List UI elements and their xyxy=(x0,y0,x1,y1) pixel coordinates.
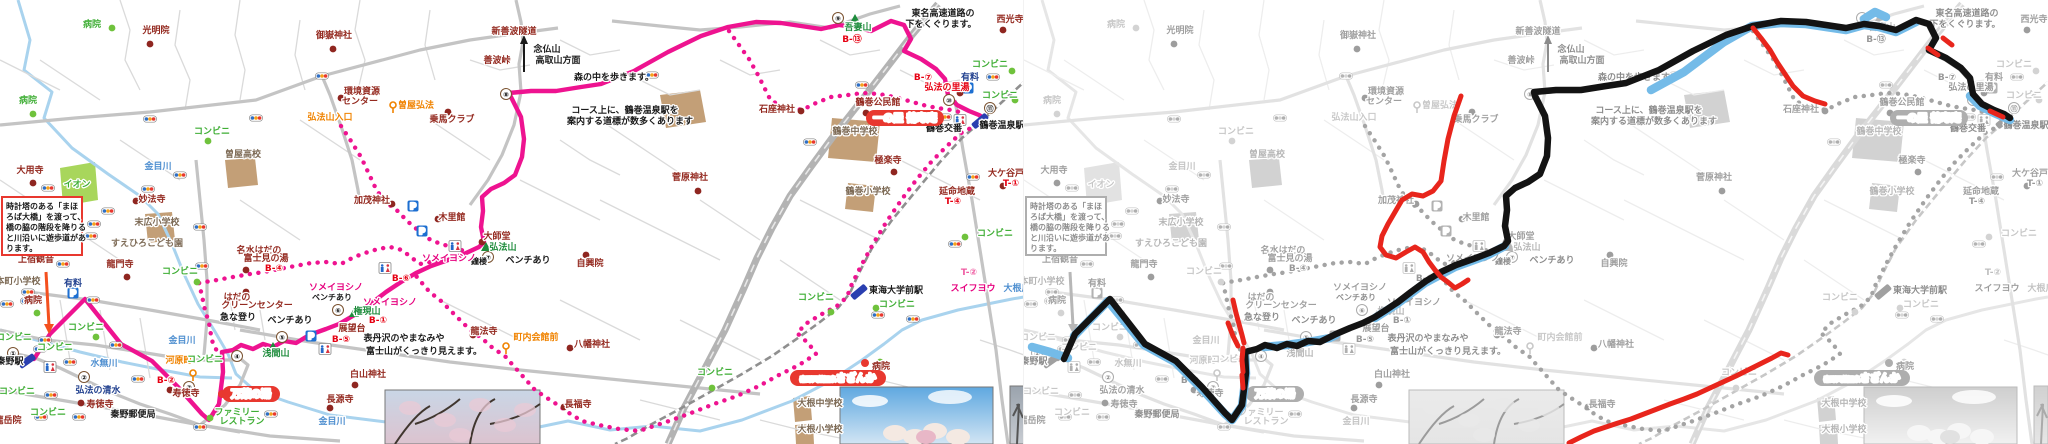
svg-text:秦野郵便局: 秦野郵便局 xyxy=(109,408,155,420)
gps-traces-svg xyxy=(1024,0,2048,444)
svg-text:本町小学校: 本町小学校 xyxy=(0,275,41,287)
svg-text:橋の脇の階段を降りる: 橋の脇の階段を降りる xyxy=(6,222,86,232)
svg-text:曽屋弘法: 曽屋弘法 xyxy=(398,99,434,111)
svg-text:レストラン: レストラン xyxy=(219,416,264,427)
svg-text:鶴巻中学校: 鶴巻中学校 xyxy=(832,125,878,137)
svg-text:新善波隧道: 新善波隧道 xyxy=(491,25,536,37)
svg-text:大根中学校: 大根中学校 xyxy=(797,397,843,409)
svg-text:⑪: ⑪ xyxy=(987,104,994,113)
svg-text:⑩: ⑩ xyxy=(946,97,952,105)
svg-text:⑨: ⑨ xyxy=(835,15,841,23)
svg-text:高取山方面: 高取山方面 xyxy=(535,54,580,66)
svg-text:乗馬クラブ: 乗馬クラブ xyxy=(429,113,474,125)
svg-text:寿徳寺: 寿徳寺 xyxy=(172,387,199,399)
svg-text:B-⑦: B-⑦ xyxy=(914,73,932,83)
svg-text:善波峠: 善波峠 xyxy=(483,54,510,66)
svg-text:コンビニ: コンビニ xyxy=(977,227,1013,239)
panel-course-map-gps-overlay: PPPPP①②③④⑤⑥⑦⑧⑨⑩⑪病院病院光明院御嶽神社コンビニ弘法山入口新善波隧… xyxy=(1024,0,2048,444)
svg-text:極楽寺: 極楽寺 xyxy=(873,154,901,166)
svg-text:鶴巻小学校: 鶴巻小学校 xyxy=(845,185,891,197)
svg-text:B-⑬: B-⑬ xyxy=(842,33,862,45)
svg-text:コンビニ: コンビニ xyxy=(37,341,73,353)
svg-text:T-②: T-② xyxy=(961,268,977,278)
svg-text:念仏山: 念仏山 xyxy=(532,43,560,55)
svg-text:コンビニ: コンビニ xyxy=(879,298,915,310)
svg-text:病院: 病院 xyxy=(83,18,101,30)
svg-text:浅間山: 浅間山 xyxy=(262,347,289,359)
gps-trace-black xyxy=(1064,20,2010,420)
gps-trace-blue xyxy=(1032,12,2010,420)
svg-text:コンビニ: コンビニ xyxy=(0,385,35,397)
svg-text:有料: 有料 xyxy=(961,71,979,83)
svg-text:T-①: T-① xyxy=(1003,179,1019,189)
svg-text:すえひろこども園: すえひろこども園 xyxy=(111,237,183,249)
gps-trace-red xyxy=(1228,28,2003,443)
svg-text:⑥: ⑥ xyxy=(335,307,341,315)
svg-text:ソメイヨシノ: ソメイヨシノ xyxy=(422,253,476,264)
svg-text:弘法山入口: 弘法山入口 xyxy=(307,111,352,123)
svg-text:森の中を歩きます。: 森の中を歩きます。 xyxy=(574,71,654,83)
svg-text:東名高速道路の: 東名高速道路の xyxy=(911,7,974,19)
svg-text:加茂神社: 加茂神社 xyxy=(353,194,390,206)
svg-text:ベンチあり: ベンチあり xyxy=(267,315,312,326)
svg-text:八幡神社: 八幡神社 xyxy=(573,338,610,350)
svg-text:イオン: イオン xyxy=(63,179,90,190)
svg-text:吾妻山: 吾妻山 xyxy=(844,21,871,33)
svg-text:環境資源: 環境資源 xyxy=(344,85,380,97)
svg-text:急な登り: 急な登り xyxy=(220,311,256,323)
svg-text:B-①: B-① xyxy=(369,316,387,326)
svg-text:ソメイヨシノ: ソメイヨシノ xyxy=(309,282,363,293)
svg-text:コンビニ: コンビニ xyxy=(30,406,66,418)
svg-text:金目川: 金目川 xyxy=(143,160,171,172)
svg-text:龍岳院: 龍岳院 xyxy=(0,414,22,426)
svg-text:⑤: ⑤ xyxy=(279,334,285,342)
svg-text:コンビニ: コンビニ xyxy=(697,366,733,378)
svg-text:B-⑤: B-⑤ xyxy=(332,335,350,345)
svg-text:東海大学前駅: 東海大学前駅 xyxy=(869,284,924,296)
svg-text:表丹沢のやまなみや: 表丹沢のやまなみや xyxy=(362,332,444,344)
svg-text:寿徳寺: 寿徳寺 xyxy=(86,398,113,410)
svg-text:時計塔のある「まほ: 時計塔のある「まほ xyxy=(6,201,78,211)
svg-text:下をくぐります。: 下をくぐります。 xyxy=(905,19,976,30)
svg-text:クリーンセンター: クリーンセンター xyxy=(221,299,293,311)
svg-text:コース上に、鶴巻温泉駅を: コース上に、鶴巻温泉駅を xyxy=(571,104,678,116)
svg-text:コンビニ: コンビニ xyxy=(162,265,198,277)
svg-text:御嶽神社: 御嶽神社 xyxy=(315,29,352,41)
svg-text:長福寺: 長福寺 xyxy=(564,398,591,410)
svg-text:P: P xyxy=(419,227,425,236)
svg-text:白山神社: 白山神社 xyxy=(350,368,386,380)
svg-text:ろば大橋」を渡って、: ろば大橋」を渡って、 xyxy=(6,212,85,222)
svg-text:曽屋高校: 曽屋高校 xyxy=(225,148,262,160)
svg-text:コンビニ: コンビニ xyxy=(0,331,32,343)
svg-text:町内会館前: 町内会館前 xyxy=(513,331,558,343)
svg-text:大根川: 大根川 xyxy=(1003,282,1024,294)
svg-text:長源寺: 長源寺 xyxy=(326,393,353,405)
svg-text:弘法の清水: 弘法の清水 xyxy=(75,384,121,396)
svg-text:大師堂: 大師堂 xyxy=(483,230,510,242)
svg-text:②: ② xyxy=(81,374,87,382)
svg-text:秦野駅: 秦野駅 xyxy=(0,355,24,367)
svg-text:富士見の湯: 富士見の湯 xyxy=(243,252,288,264)
svg-text:P: P xyxy=(410,202,416,211)
svg-text:ベンチあり: ベンチあり xyxy=(505,255,550,266)
svg-text:大ケ谷戸: 大ケ谷戸 xyxy=(988,167,1024,179)
screenshot-root: PPPPP①②③④⑤⑥⑦⑧⑨⑩⑪病院病院光明院御嶽神社コンビニ弘法山入口新善波隧… xyxy=(0,0,2048,444)
svg-text:万葉の湯: 万葉の湯 xyxy=(230,388,271,401)
svg-text:コンビニ: コンビニ xyxy=(798,291,834,303)
svg-text:案内する道標が数多くあります: 案内する道標が数多くあります xyxy=(566,115,693,127)
svg-text:金目川: 金目川 xyxy=(167,334,195,346)
svg-text:ります。: ります。 xyxy=(6,244,37,253)
svg-text:妙法寺: 妙法寺 xyxy=(138,193,165,205)
svg-text:自興院: 自興院 xyxy=(576,257,603,269)
svg-text:富士山がくっきり見えます。: 富士山がくっきり見えます。 xyxy=(366,345,482,357)
svg-text:コンビニ: コンビニ xyxy=(972,58,1008,70)
svg-text:西光寺: 西光寺 xyxy=(996,13,1023,25)
svg-text:と川沿いに遊歩道があ: と川沿いに遊歩道があ xyxy=(6,233,86,243)
svg-text:弘法の里湯: 弘法の里湯 xyxy=(924,81,969,93)
svg-text:龍法寺: 龍法寺 xyxy=(470,325,497,337)
svg-text:末広小学校: 末広小学校 xyxy=(133,216,180,228)
svg-text:延命地蔵: 延命地蔵 xyxy=(938,185,975,197)
svg-text:スイフヨウ: スイフヨウ xyxy=(950,283,995,294)
svg-text:石座神社: 石座神社 xyxy=(758,103,795,115)
svg-text:P: P xyxy=(70,289,76,298)
svg-text:金目川: 金目川 xyxy=(317,415,345,427)
svg-text:鶴巻公民館: 鶴巻公民館 xyxy=(855,96,900,108)
svg-text:大用寺: 大用寺 xyxy=(16,164,43,176)
svg-text:木里館: 木里館 xyxy=(437,211,465,223)
svg-text:水無川: 水無川 xyxy=(90,357,117,369)
panel-course-map-color: PPPPP①②③④⑤⑥⑦⑧⑨⑩⑪病院病院光明院御嶽神社コンビニ弘法山入口新善波隧… xyxy=(0,0,1024,444)
svg-text:病院: 病院 xyxy=(24,294,42,306)
svg-text:ベンチあり: ベンチあり xyxy=(312,293,352,302)
svg-text:コンビニ: コンビニ xyxy=(194,125,230,137)
note-textbox: 時計塔のある「まほろば大橋」を渡って、橋の脇の階段を降りると川沿いに遊歩道があり… xyxy=(2,197,86,255)
svg-text:B-②: B-② xyxy=(157,376,175,386)
course-map-svg: PPPPP①②③④⑤⑥⑦⑧⑨⑩⑪病院病院光明院御嶽神社コンビニ弘法山入口新善波隧… xyxy=(0,0,1024,444)
svg-text:コンビニ: コンビニ xyxy=(982,89,1018,101)
svg-text:龍門寺: 龍門寺 xyxy=(106,258,133,270)
svg-text:光明院: 光明院 xyxy=(141,24,169,36)
svg-text:有料: 有料 xyxy=(64,277,82,289)
svg-text:大根小学校: 大根小学校 xyxy=(797,423,843,435)
svg-text:コンビニ: コンビニ xyxy=(68,321,104,333)
svg-text:B-④: B-④ xyxy=(265,264,283,274)
svg-text:菅原神社: 菅原神社 xyxy=(672,171,708,183)
svg-text:P: P xyxy=(308,332,314,341)
svg-text:コンビニ: コンビニ xyxy=(187,353,223,365)
svg-text:B-⑥: B-⑥ xyxy=(392,274,410,284)
svg-text:病院: 病院 xyxy=(19,94,37,106)
svg-text:⑧: ⑧ xyxy=(503,91,509,99)
svg-text:一の屋 鶴寿庵: 一の屋 鶴寿庵 xyxy=(873,112,937,125)
svg-text:展望台: 展望台 xyxy=(338,322,365,334)
svg-text:弘法山: 弘法山 xyxy=(489,241,516,253)
svg-text:センター: センター xyxy=(342,95,378,107)
svg-text:T-④: T-④ xyxy=(945,197,961,207)
svg-text:④: ④ xyxy=(234,353,240,361)
svg-text:鶴巻温泉駅: 鶴巻温泉駅 xyxy=(979,119,1024,131)
